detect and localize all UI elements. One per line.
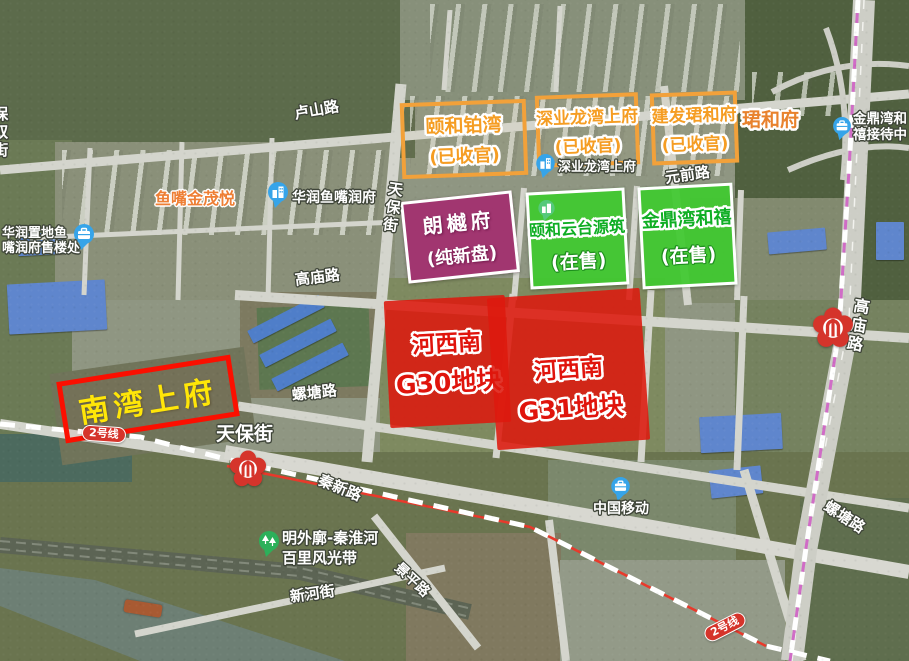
- poi-label-zhongguo-yidong: 中国移动: [593, 501, 649, 517]
- plot-name: 南湾上府: [75, 366, 220, 431]
- plot-box-jianfa-junhefu: 建发珺和府 (已收官): [650, 91, 739, 166]
- metro-line2-badge: 2号线: [81, 424, 126, 443]
- parcel-id: G30地块: [395, 360, 502, 401]
- poi-label-line2: 嘴润府售楼处: [2, 241, 80, 256]
- land-parcel-g31: 河西南 G31地块: [487, 288, 650, 450]
- parcel-id: G31地块: [517, 385, 625, 428]
- poi-label-shoulouchu: 华润置地鱼 嘴润府售楼处: [2, 226, 80, 256]
- plot-name: 深业龙湾上府: [536, 101, 639, 130]
- metro-station-icon: [812, 307, 854, 349]
- poi-label-jiedai-center: 金鼎湾和 禧接待中: [853, 112, 907, 143]
- briefcase-icon: [611, 477, 630, 502]
- plot-name: 朗樾府: [421, 203, 496, 239]
- plot-box-langyuefu: 朗樾府 (纯新盘): [400, 190, 520, 283]
- parcel-area: 河西南: [533, 347, 604, 386]
- briefcase-icon: [833, 117, 851, 141]
- poi-label-line2: 百里风光带: [282, 548, 378, 568]
- parcel-area: 河西南: [411, 322, 482, 360]
- poi-label-yuzuijinmaoyue: 鱼嘴金茂悦: [155, 190, 235, 208]
- road-label-baoshuangjie: 保双街: [0, 106, 8, 160]
- plot-box-jindingwan-hexi: 金鼎湾和禧 (在售): [637, 183, 737, 290]
- poi-label-line1: 金鼎湾和: [853, 112, 907, 128]
- satellite-map: 颐和铂湾 (已收官) 深业龙湾上府 (已收官) 建发珺和府 (已收官) 朗樾府 …: [0, 0, 909, 661]
- metro-station-icon: [229, 450, 267, 488]
- station-label-tianbaojie: 天保街: [216, 424, 273, 446]
- poi-label-line1: 明外廓-秦淮河: [282, 528, 378, 548]
- poi-label-line1: 华润置地鱼: [2, 226, 80, 241]
- river: [0, 568, 345, 661]
- plot-name: 颐和铂湾: [425, 109, 502, 139]
- plot-status: (已收官): [554, 131, 621, 158]
- park-icon: [259, 531, 279, 558]
- building-icon: [268, 182, 288, 209]
- poi-label-huarun-runfu: 华润鱼嘴润府: [292, 190, 376, 206]
- plot-status: (在售): [550, 246, 607, 276]
- plot-box-yihebowan: 颐和铂湾 (已收官): [400, 99, 529, 179]
- poi-label-junhefu-base: 珺和府: [742, 110, 799, 132]
- building-icon-green: [538, 200, 555, 222]
- poi-label-line2: 禧接待中: [853, 128, 907, 144]
- building-icon: [536, 154, 555, 179]
- plot-status: (纯新盘): [425, 238, 498, 271]
- plot-status: (已收官): [661, 129, 728, 156]
- poi-label-shenye-base: 深业龙湾上府: [558, 161, 636, 176]
- plot-status: (已收官): [429, 140, 500, 168]
- plot-name: 建发珺和府: [651, 100, 737, 128]
- poi-label-mingwaiguo: 明外廓-秦淮河 百里风光带: [282, 528, 378, 568]
- plot-status: (在售): [660, 239, 717, 269]
- plot-name: 金鼎湾和禧: [641, 202, 732, 233]
